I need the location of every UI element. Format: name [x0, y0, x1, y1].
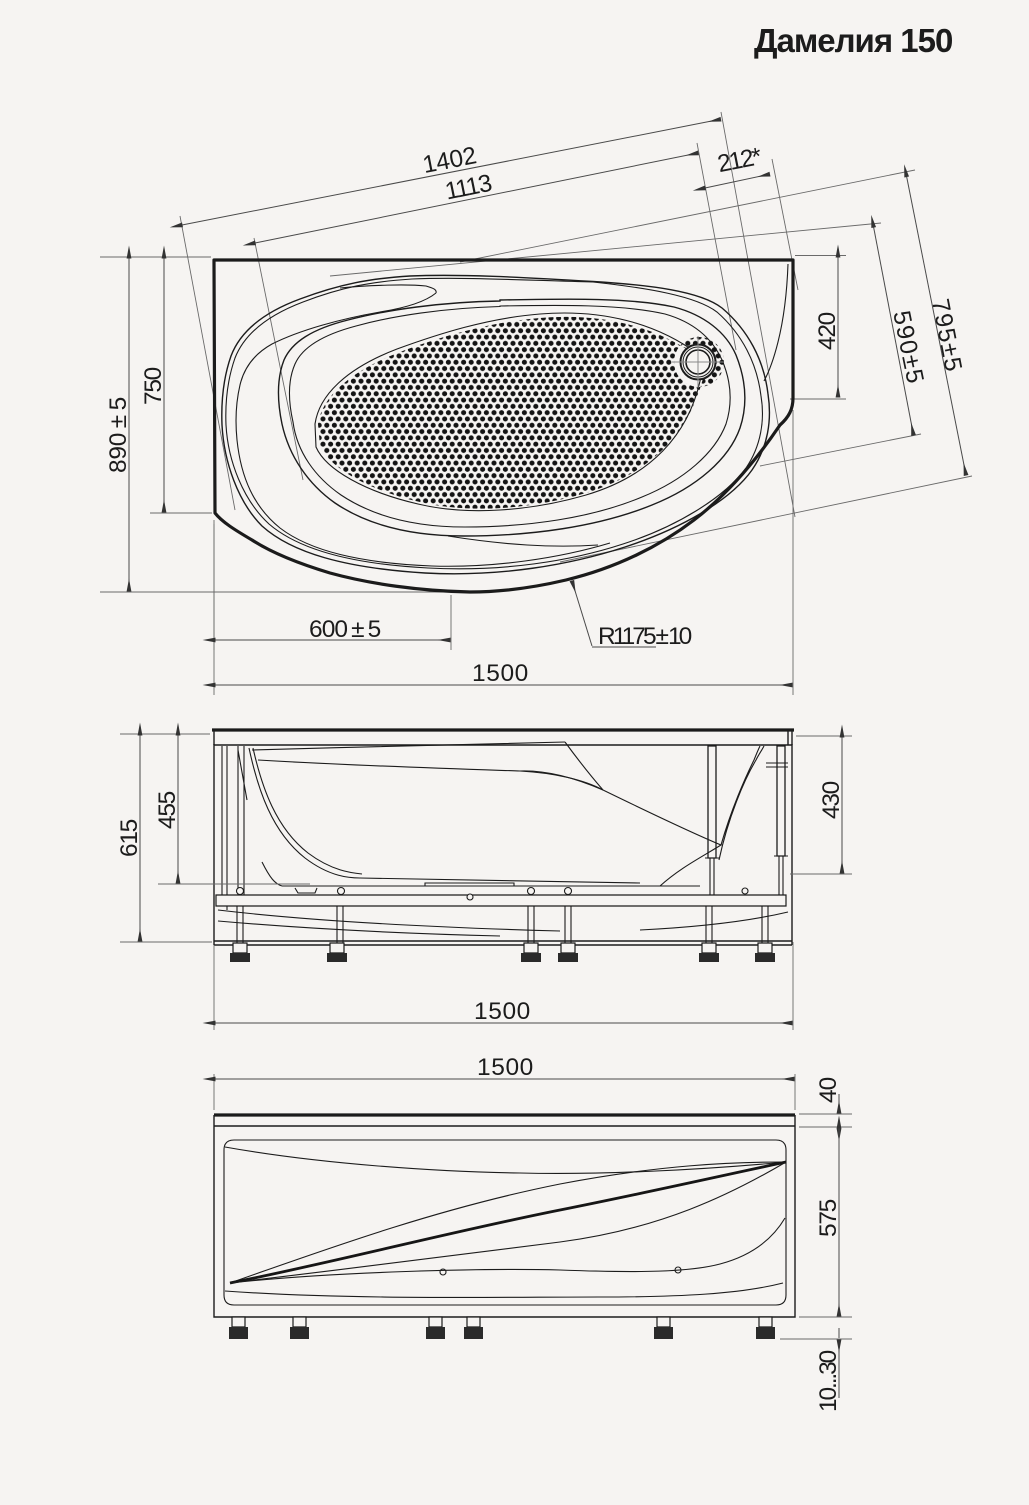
- svg-text:600 ± 5: 600 ± 5: [309, 616, 381, 643]
- svg-text:590±5: 590±5: [887, 308, 928, 385]
- svg-text:890 ± 5: 890 ± 5: [105, 397, 132, 473]
- svg-text:420: 420: [814, 312, 841, 350]
- svg-text:1500: 1500: [472, 660, 528, 687]
- svg-text:40: 40: [815, 1077, 842, 1103]
- svg-text:795±5: 795±5: [926, 297, 966, 374]
- svg-text:1500: 1500: [474, 998, 530, 1025]
- svg-text:615: 615: [116, 819, 143, 857]
- svg-text:455: 455: [154, 791, 181, 829]
- svg-text:575: 575: [815, 1199, 842, 1237]
- svg-text:212*: 212*: [715, 143, 764, 178]
- svg-text:Дамелия 150: Дамелия 150: [754, 22, 953, 59]
- svg-text:430: 430: [818, 781, 845, 819]
- svg-text:10...30: 10...30: [815, 1350, 842, 1412]
- svg-text:750: 750: [140, 367, 167, 405]
- svg-text:R1175 ± 10: R1175 ± 10: [598, 623, 692, 650]
- svg-text:1113: 1113: [443, 170, 494, 206]
- svg-text:1500: 1500: [477, 1054, 533, 1081]
